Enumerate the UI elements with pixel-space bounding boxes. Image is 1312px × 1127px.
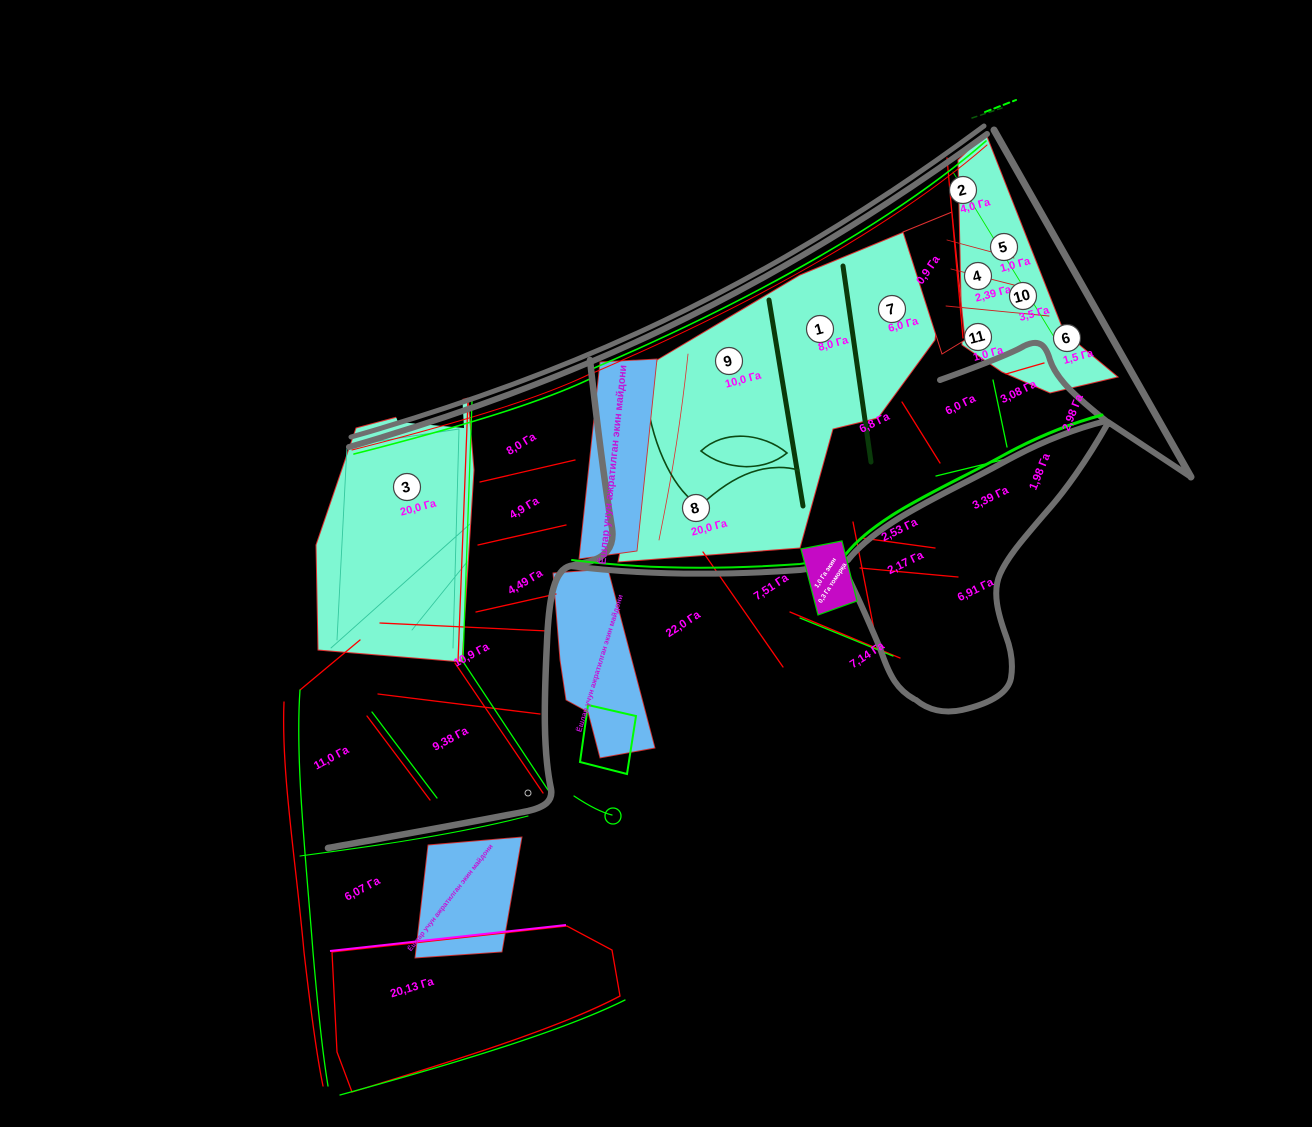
- road-s-curve-loop: [916, 423, 1108, 712]
- area-label: 3,39 Га: [971, 484, 1011, 512]
- area-label: 3,08 Га: [999, 378, 1039, 406]
- parcel-map-canvas: Ёшлар учун ажратилган экин майдониЁшлар …: [0, 0, 1312, 1127]
- area-label: 22,0 Га: [664, 609, 703, 640]
- red-boundary: [300, 640, 543, 800]
- dark-green-dashes: [972, 108, 1002, 118]
- area-label: 6,0 Га: [944, 393, 979, 418]
- parcel-3-polygon: [316, 398, 474, 662]
- area-label: 9,38 Га: [431, 725, 471, 754]
- area-label: 20,13 Га: [389, 976, 436, 1001]
- area-label: 8,0 Га: [505, 431, 539, 458]
- area-label: 6,91 Га: [956, 576, 996, 604]
- survey-point: [525, 790, 531, 796]
- area-label: 4,49 Га: [506, 567, 546, 597]
- green-dashes: [985, 100, 1016, 112]
- area-label: 7,51 Га: [752, 572, 791, 603]
- cad-land-parcel-map: Ёшлар учун ажратилган экин майдониЁшлар …: [0, 0, 1312, 1127]
- area-label: 6,07 Га: [343, 875, 383, 904]
- green-circle-mark: [605, 808, 621, 824]
- area-label: 1,98 Га: [1027, 451, 1053, 492]
- area-label: 11,0 Га: [312, 744, 351, 773]
- area-label: 4,9 Га: [508, 495, 542, 522]
